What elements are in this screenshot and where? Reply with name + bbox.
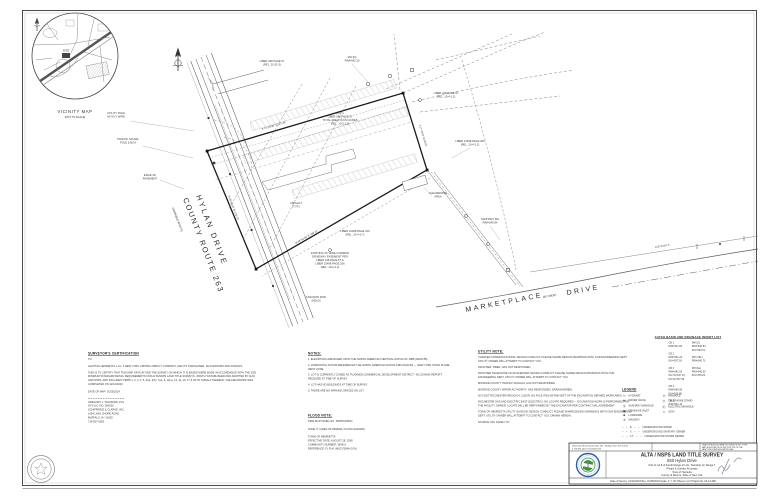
note-item: 1. ELEVATIONS ARE BASED UPON THE NORTH A…	[308, 358, 452, 362]
note-item: 2. HORIZONTAL DATUM REFERENCES THE NORTH…	[308, 364, 452, 372]
map-annotation: TRAFFIC SIGNAL POLE & BOX	[93, 138, 163, 145]
legend-item: ✛ MAILBOX	[622, 418, 654, 422]
utility-paragraph: FRONTIER TELEPHONE OF ROCHESTER: DESIGN …	[478, 372, 632, 380]
map-annotation: EXISTING 20' WIDE COMMON DRIVEWAY EASEME…	[295, 252, 365, 270]
legend-label: ELECTRIC MANHOLE	[668, 405, 693, 408]
survey-info-line: Date of Survey: 12/12/2023 Rev. 01/25/20…	[610, 480, 716, 483]
map-annotation: UTILITY POLE W/ GUY WIRE	[81, 112, 151, 119]
utility-paragraph: FRONTIER: FIBER, HAS NOT RESPONDED.	[478, 366, 632, 370]
linetype-label: UNDERGROUND SANITARY SEWER	[643, 430, 686, 433]
certification-to-label: TO:	[88, 358, 260, 362]
legend-label: SIGN	[668, 411, 674, 414]
linetype-label: UNDERGROUND WATER	[643, 426, 672, 429]
legend-linetype: — — S — — UNDERGROUND SANITARY SEWER	[622, 430, 756, 433]
notes-heading: NOTES:	[308, 352, 458, 356]
map-annotation: LIBER 10498 PAGE 310 (REL. 10-4-1-7)	[320, 230, 390, 237]
legend-left-column: ▭ HYDRANT ⋈ WATER VALVE Ⓢ SANITARY MANHO…	[622, 394, 654, 423]
linetype-label: UNDERGROUND STORM SEWER	[645, 435, 685, 438]
flood-heading: FLOOD NOTE:	[308, 414, 458, 418]
legend-item: ■ LUMINAIRE	[622, 414, 654, 417]
legend-label: SANITARY MANHOLE	[629, 404, 654, 407]
legend-symbol-icon: ▣	[622, 409, 627, 413]
note-item: 3. LOT IS CURRENTLY ZONED AS 'PLANNED CO…	[308, 374, 452, 382]
map-annotation: LIBER 10498 PAGE 206 (REL. 10-4-1.2)	[435, 140, 505, 147]
legend-symbol-icon: ⋈	[622, 399, 627, 403]
linetype-dash: — — W — —	[622, 426, 640, 429]
legend-symbol-icon: Ⓢ	[622, 404, 627, 409]
note-item: 4. LOT HAS NO BUILDINGS AT TIME OF SURVE…	[308, 383, 452, 387]
legend-label: LUMINAIRE	[629, 414, 643, 417]
legend-linetypes: — — W — — UNDERGROUND WATER — — S — — UN…	[622, 426, 756, 438]
certification-parties: GHATTAS HENRIETTA, LLC, A NEW YORK LIMIT…	[88, 365, 260, 369]
utility-paragraph: ROCHESTER GAS AND ELECTRIC EAST (ELECTRI…	[478, 401, 632, 409]
utility-paragraph: NYS DOT ROCHESTER REGION 4: CLEAR, NO FA…	[478, 395, 632, 399]
site-label: SITE	[63, 49, 70, 53]
utility-paragraph: MONROE COUNTY WATER AUTHORITY: HAS RESPO…	[478, 388, 632, 392]
site-marker	[62, 53, 70, 58]
map-annotation: ASPHALT (TYP.)	[261, 202, 331, 209]
utility-paragraphs: CHARTER COMMUNICATIONS: DESIGN CONFLICT,…	[478, 356, 632, 425]
flood-note-block: FLOOD NOTE: FIRM MAP PANEL NO. 36055C035…	[308, 414, 458, 451]
utility-paragraph: CHARTER COMMUNICATIONS: DESIGN CONFLICT,…	[478, 356, 632, 364]
note-item: 5. THERE ARE NO PARKING SPACES ON LOT.	[308, 389, 452, 393]
legend-item: ◎ MANHOLE	[662, 394, 694, 398]
law-note-line3: NEW YORK STATE EDUCATION LAW.	[702, 448, 734, 451]
utility-paragraph: SOURCE: DIG SAFELY NY	[478, 421, 632, 425]
notes-list: 1. ELEVATIONS ARE BASED UPON THE NORTH A…	[308, 358, 452, 393]
legend-label: TELEPHONE STAND	[668, 400, 692, 403]
notes-block: NOTES: 1. ELEVATIONS ARE BASED UPON THE …	[308, 352, 458, 395]
legend-symbol-icon: ▭	[622, 394, 627, 398]
certification-body: THIS IS TO CERTIFY THAT THIS MAP OR PLAT…	[88, 371, 260, 387]
legend-label: WATER VALVE	[629, 399, 646, 402]
map-annotation: SANITARY MH RIM=540.84	[455, 218, 525, 225]
legend-symbol-icon: ✛	[622, 418, 627, 422]
legend-item: ⋈ WATER VALVE	[622, 399, 654, 403]
legend-label: HYDRANT	[629, 394, 641, 397]
title-block: 1654 Lake Shore Road, Suite 200 · Buffal…	[569, 443, 757, 484]
legend-item: Ⓢ SANITARY MANHOLE	[622, 404, 654, 409]
map-annotation: LOT 1 LIBER 348 PAGE 57 TOTAL AREA ±3.67…	[305, 112, 375, 126]
survey-sheet: SITE VICINITY MAP (NOT TO SCALE)	[0, 0, 768, 497]
linetype-dash: — — S — —	[622, 430, 640, 433]
invert-list-heading: CATCH BASIN AND DRAINAGE INVERT LIST	[620, 336, 756, 339]
map-annotation: EDGE OF PAVEMENT	[115, 174, 185, 181]
map-annotation: LIBER 348 PAGE 57 (REL. 10-4-1.2)	[411, 92, 481, 99]
utility-heading: UTILITY NOTE:	[478, 350, 638, 354]
certification-heading: SURVEYOR'S CERTIFICATION	[88, 352, 266, 356]
linetype-dash: — — ST — —	[622, 435, 642, 438]
legend-label: MANHOLE	[668, 394, 680, 397]
map-annotation: MH (D) RIM=542.10	[317, 56, 387, 63]
legend-item: Ⓔ ELECTRIC MANHOLE	[662, 405, 694, 410]
legend-symbol-icon: ◎	[662, 394, 667, 398]
legend-linetype: — — ST — — UNDERGROUND STORM SEWER	[622, 435, 756, 438]
utility-paragraph: TOWN OF HENRIETTA UTILITY DIVISION: DESI…	[478, 411, 632, 419]
map-annotation: LIBER 348 PAGE 57 (REL. 10-21-3)	[237, 60, 307, 67]
legend-block: LEGEND ▭ HYDRANT ⋈ WATER VALVE Ⓢ	[622, 388, 756, 439]
utility-paragraph: MONROE COUNTY TRAFFIC SIGNALS: HAS NOT R…	[478, 382, 632, 386]
legend-right-column: ◎ MANHOLE Ⓣ TELEPHONE STAND Ⓔ ELECTRIC M…	[662, 394, 694, 423]
certification-date: DATE OF MAP: 01/25/2024	[88, 390, 260, 394]
firm-phone: p 716.824.1470 f 716.824.1473	[572, 449, 602, 451]
legend-item: ▣ DRAINAGE INLET	[622, 409, 654, 413]
legend-heading: LEGEND	[622, 388, 756, 392]
legend-label: MAILBOX	[629, 419, 640, 422]
legend-linetype: — — W — — UNDERGROUND WATER	[622, 426, 756, 429]
map-annotation: FND IRON ROD (HELD)	[281, 296, 351, 303]
legend-item: Ⓣ TELEPHONE STAND	[662, 399, 694, 404]
legend-symbol-icon: Ⓔ	[662, 405, 667, 410]
legend-symbol-icon: ▽	[662, 410, 667, 414]
surveyor-signature-block: GREGORY J. SCHIFFER, PLS NYS LIC. NO. 05…	[88, 401, 260, 424]
signature-line	[88, 398, 124, 399]
firm-address: 1654 Lake Shore Road, Suite 200 · Buffal…	[572, 445, 629, 448]
legend-item: ▭ HYDRANT	[622, 394, 654, 398]
flood-lines: FIRM MAP PANEL NO. 36055C0354G ZONE 'X' …	[308, 420, 452, 451]
utility-note-block: UTILITY NOTE: CHARTER COMMUNICATIONS: DE…	[478, 350, 638, 427]
survey-address: 840 Hylan Drive	[667, 458, 697, 463]
map-annotation: CLEARWATER AREA	[403, 192, 473, 199]
legend-label: DRAINAGE INLET	[629, 410, 650, 413]
legend-symbol-icon: Ⓣ	[662, 399, 667, 404]
legend-item: ▽ SIGN	[662, 410, 694, 414]
legend-symbol-icon: ■	[622, 414, 627, 417]
survey-desc4: County of Monroe, State of New York	[661, 474, 703, 477]
certification-block: SURVEYOR'S CERTIFICATION TO: GHATTAS HEN…	[88, 352, 266, 424]
